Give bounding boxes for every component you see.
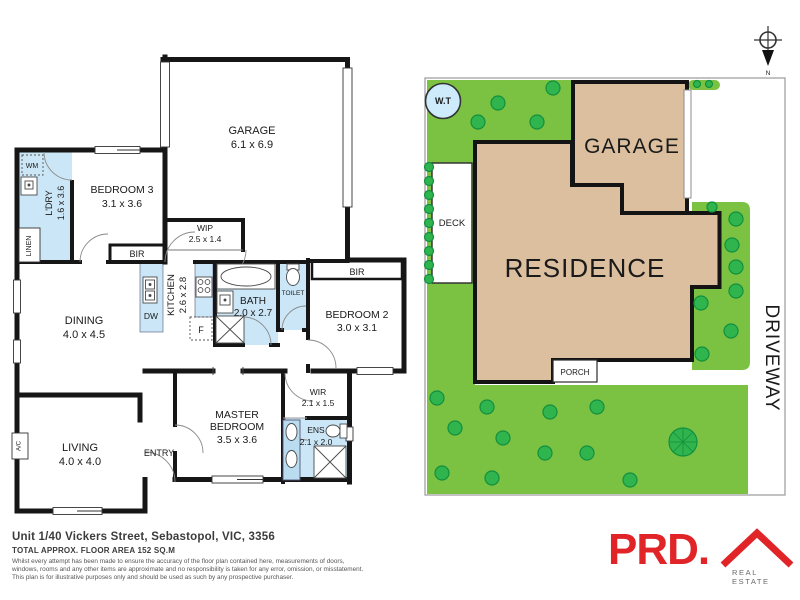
porch-label: PORCH <box>561 368 590 377</box>
entry-label: ENTRY <box>144 448 174 458</box>
deck-label: DECK <box>439 218 466 229</box>
bir-label-bed2: BIR <box>349 267 365 277</box>
living-dims: 4.0 x 4.0 <box>59 456 101 468</box>
kitchen-label: KITCHEN <box>166 274 177 316</box>
wip-dims: 2.5 x 1.4 <box>189 234 222 244</box>
master-opening-ticks <box>213 367 243 375</box>
cooktop-icon <box>196 277 212 297</box>
bedroom3-label: BEDROOM 3 <box>90 184 153 196</box>
bath-dims: 2.0 x 2.7 <box>234 308 273 319</box>
wir-dims: 2.1 x 1.5 <box>302 398 335 408</box>
dining-window-1 <box>14 280 21 313</box>
floorplan-page: GARAGE RESIDENCE DECK PORCH W.T DRIVEWAY… <box>0 0 800 600</box>
bedroom2-label: BEDROOM 2 <box>325 309 388 321</box>
bedroom2-window <box>357 368 393 375</box>
ac-label: A/C <box>17 440 23 451</box>
master-label-1: MASTER <box>215 409 259 421</box>
garage-door-left <box>161 62 170 147</box>
bedroom3-dims: 3.1 x 3.6 <box>102 198 142 210</box>
laundry-dims: 1.6 x 3.6 <box>56 186 66 221</box>
site-garage-door <box>684 90 691 198</box>
site-residence-label: RESIDENCE <box>505 253 666 283</box>
garage-door-right <box>343 68 352 207</box>
agency-logo: PRD. REAL ESTATE <box>608 528 794 588</box>
wir-label: WIR <box>310 387 327 397</box>
dining-dims: 4.0 x 4.5 <box>63 329 105 341</box>
bir-label-bed3: BIR <box>129 249 145 259</box>
plan-graphic: GARAGE RESIDENCE DECK PORCH W.T DRIVEWAY… <box>0 0 800 600</box>
floor-area-text: TOTAL APPROX. FLOOR AREA 152 SQ.M <box>12 546 432 555</box>
address-text: Unit 1/40 Vickers Street, Sebastopol, VI… <box>12 531 432 543</box>
garage-label: GARAGE <box>228 125 275 137</box>
roof-icon <box>720 528 794 568</box>
master-label-2: BEDROOM <box>210 421 264 433</box>
dw-label: DW <box>144 311 158 321</box>
basin-icon <box>286 451 297 468</box>
disclaimer-line-3: This plan is for illustrative purposes o… <box>12 574 432 582</box>
water-tank-label: W.T <box>435 96 451 106</box>
brand-name: PRD. <box>608 528 709 572</box>
laundry-label: L'DRY <box>44 190 54 216</box>
brand-tagline: REAL ESTATE <box>732 568 794 586</box>
site-plan: GARAGE RESIDENCE DECK PORCH W.T DRIVEWAY… <box>425 26 786 495</box>
living-label: LIVING <box>62 442 98 454</box>
linen-label: LINEN <box>26 236 33 257</box>
master-dims: 3.5 x 3.6 <box>217 434 257 446</box>
ens-dims: 2.1 x 2.0 <box>300 437 333 447</box>
bedroom2-dims: 3.0 x 3.1 <box>337 322 377 334</box>
site-garage-label: GARAGE <box>584 135 680 158</box>
ensuite-toilet-icon <box>340 424 347 438</box>
footer: Unit 1/40 Vickers Street, Sebastopol, VI… <box>12 531 432 582</box>
dining-window-2 <box>14 340 21 363</box>
disclaimer-line-2: windows, rooms and any other items are a… <box>12 566 432 574</box>
fridge-label: F <box>198 325 204 335</box>
wip-label: WIP <box>197 223 213 233</box>
bath-label: BATH <box>240 296 266 307</box>
wm-label: WM <box>26 163 39 170</box>
floor-plan: GARAGE 6.1 x 6.9 BEDROOM 3 3.1 x 3.6 L'D… <box>12 57 404 515</box>
garage-dims: 6.1 x 6.9 <box>231 139 273 151</box>
toilet-label: TOILET <box>282 290 305 297</box>
disclaimer-line-1: Whilst every attempt has been made to en… <box>12 558 432 566</box>
driveway-label: DRIVEWAY <box>761 304 782 411</box>
dining-label: DINING <box>65 315 104 327</box>
kitchen-dims: 2.6 x 2.8 <box>178 277 189 313</box>
basin-icon <box>286 424 297 441</box>
north-label: N <box>766 70 771 77</box>
ens-label: ENS <box>307 425 325 435</box>
compass-north-icon: N <box>754 26 782 77</box>
bathtub-icon <box>217 264 275 289</box>
